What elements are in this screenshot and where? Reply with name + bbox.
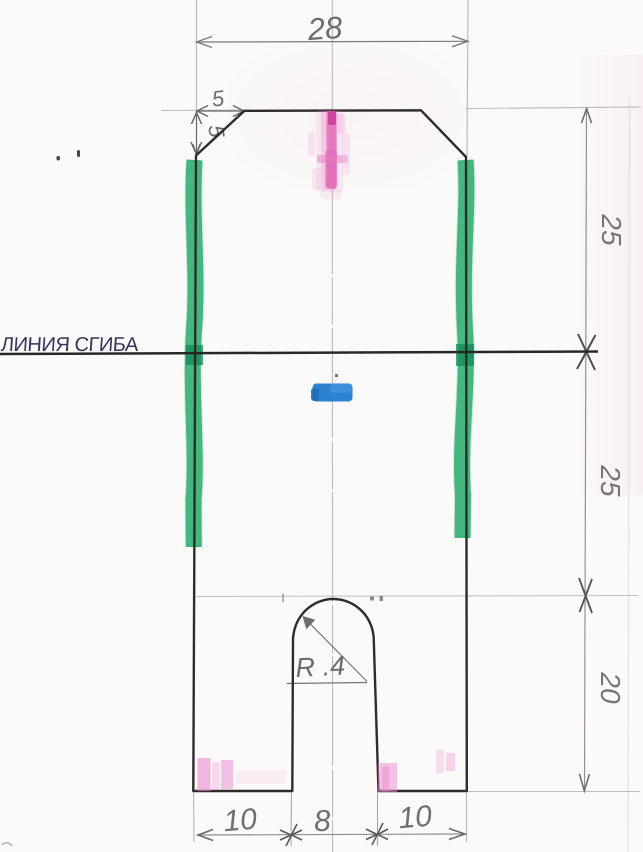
- svg-text:28: 28: [306, 10, 345, 47]
- svg-text:R .4: R .4: [295, 650, 346, 683]
- svg-text:25: 25: [595, 464, 626, 497]
- svg-text:10: 10: [397, 800, 433, 836]
- svg-text:ЛИНИЯ СГИБА: ЛИНИЯ СГИБА: [0, 334, 140, 356]
- svg-text:25: 25: [596, 213, 627, 246]
- svg-text:8: 8: [313, 804, 332, 838]
- svg-text:20: 20: [595, 671, 626, 704]
- svg-text:10: 10: [222, 803, 258, 839]
